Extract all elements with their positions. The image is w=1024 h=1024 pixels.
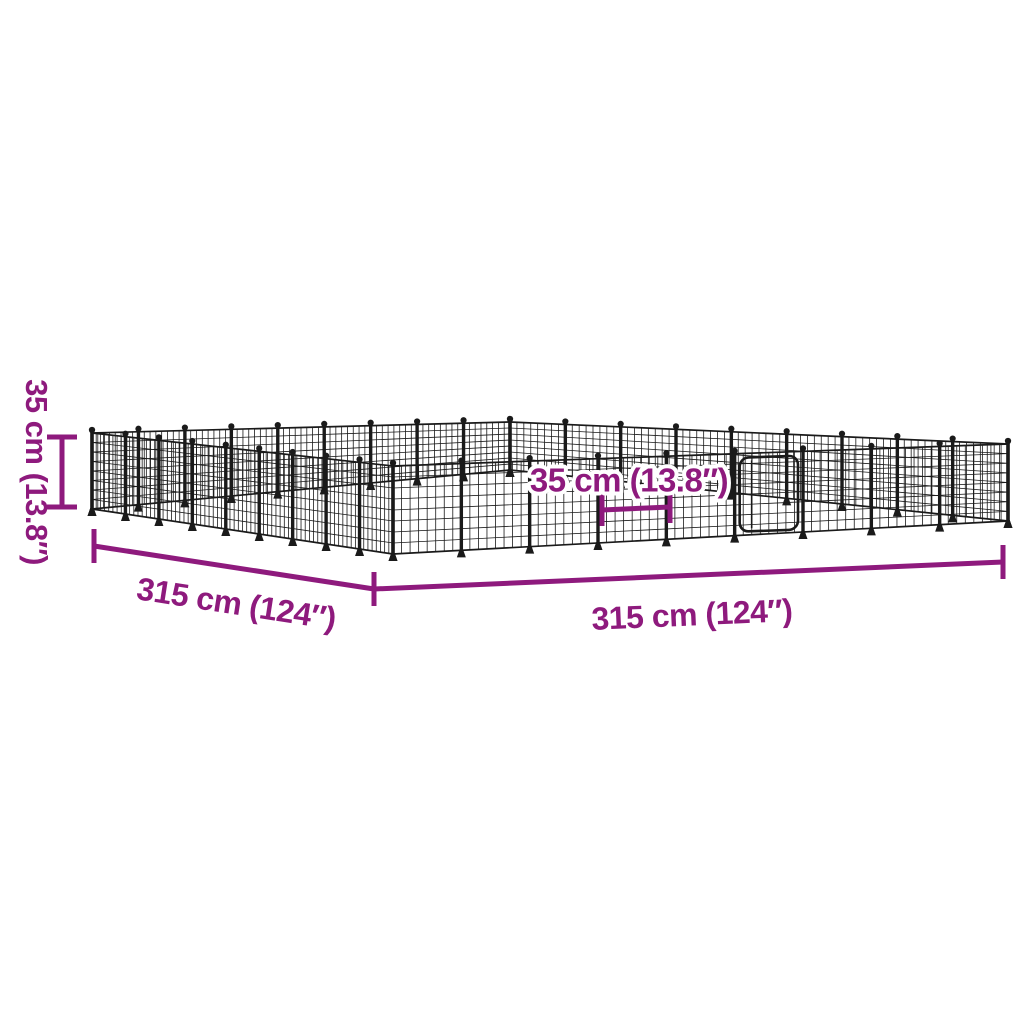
post-cap	[618, 421, 624, 427]
product-dimension-diagram: 35 cm (13.8″) 315 cm (124″) 315 cm (124″…	[0, 0, 1024, 1024]
cage-face-front-left	[88, 427, 398, 561]
post-cap	[414, 418, 420, 424]
panel-width-dimension: 35 cm (13.8″)	[530, 462, 728, 526]
panel-width-dimension-label: 35 cm (13.8″)	[530, 462, 728, 499]
side-left-dimension-line	[94, 546, 374, 589]
post-cap	[390, 460, 396, 466]
cage-face-front-right	[389, 438, 1013, 561]
post-cap	[673, 423, 679, 429]
post-cap	[784, 428, 790, 434]
post-cap	[256, 445, 262, 451]
height-dimension: 35 cm (13.8″)	[19, 379, 77, 565]
post-cap	[1005, 438, 1011, 444]
post-cap	[189, 438, 195, 444]
post-cap	[228, 423, 234, 429]
height-dimension-label: 35 cm (13.8″)	[19, 379, 54, 565]
post-cap	[950, 435, 956, 441]
post-cap	[562, 418, 568, 424]
post-cap	[800, 445, 806, 451]
post-cap	[507, 416, 513, 422]
post-cap	[135, 426, 141, 432]
post-cap	[595, 453, 601, 459]
post-cap	[663, 450, 669, 456]
side-right-dimension-label: 315 cm (124″)	[591, 592, 793, 637]
post-cap	[728, 426, 734, 432]
post-cap	[937, 440, 943, 446]
post-cap	[894, 433, 900, 439]
post-cap	[321, 421, 327, 427]
post-cap	[89, 427, 95, 433]
post-cap	[368, 420, 374, 426]
post-cap	[732, 448, 738, 454]
diagram-canvas: 35 cm (13.8″) 315 cm (124″) 315 cm (124″…	[0, 0, 1024, 1024]
post-cap	[356, 456, 362, 462]
post-cap	[275, 422, 281, 428]
panel-width-dimension-line	[602, 507, 670, 510]
side-right-dimension-line	[374, 562, 1003, 589]
post-cap	[868, 443, 874, 449]
post-cap	[223, 442, 229, 448]
post-cap	[839, 431, 845, 437]
side-right-dimension: 315 cm (124″)	[374, 545, 1003, 637]
post-cap	[460, 417, 466, 423]
post-cap	[156, 434, 162, 440]
post-cap	[527, 455, 533, 461]
post-cap	[122, 431, 128, 437]
post-cap	[290, 449, 296, 455]
post-cap	[458, 457, 464, 463]
post-cap	[182, 424, 188, 430]
post-cap	[323, 453, 329, 459]
